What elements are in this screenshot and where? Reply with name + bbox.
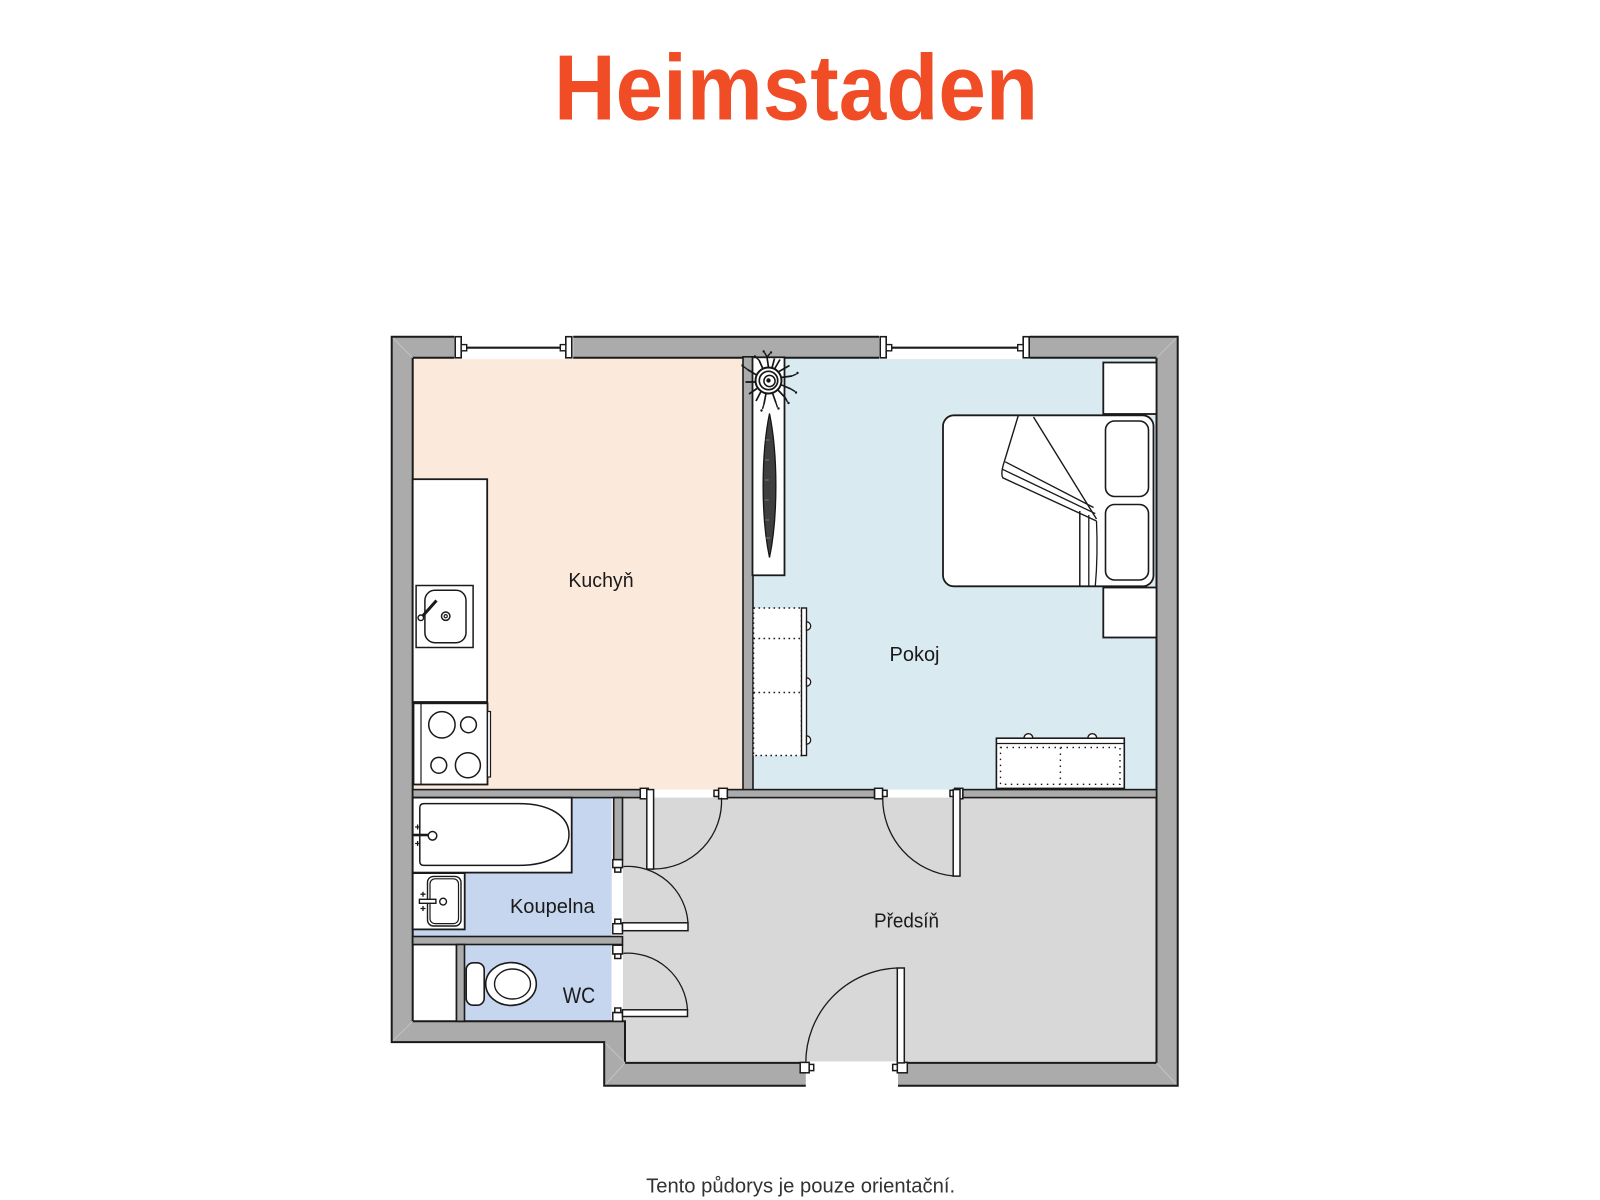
svg-text:Předsíň: Předsíň (874, 909, 939, 932)
svg-text:Koupelna: Koupelna (510, 895, 595, 918)
svg-text:Pokoj: Pokoj (890, 643, 940, 666)
svg-text:Heimstaden: Heimstaden (554, 36, 1038, 140)
svg-text:Tento půdorys je pouze orienta: Tento půdorys je pouze orientační. (646, 1176, 955, 1198)
svg-text:WC: WC (563, 983, 596, 1008)
svg-text:Kuchyň: Kuchyň (568, 569, 633, 592)
